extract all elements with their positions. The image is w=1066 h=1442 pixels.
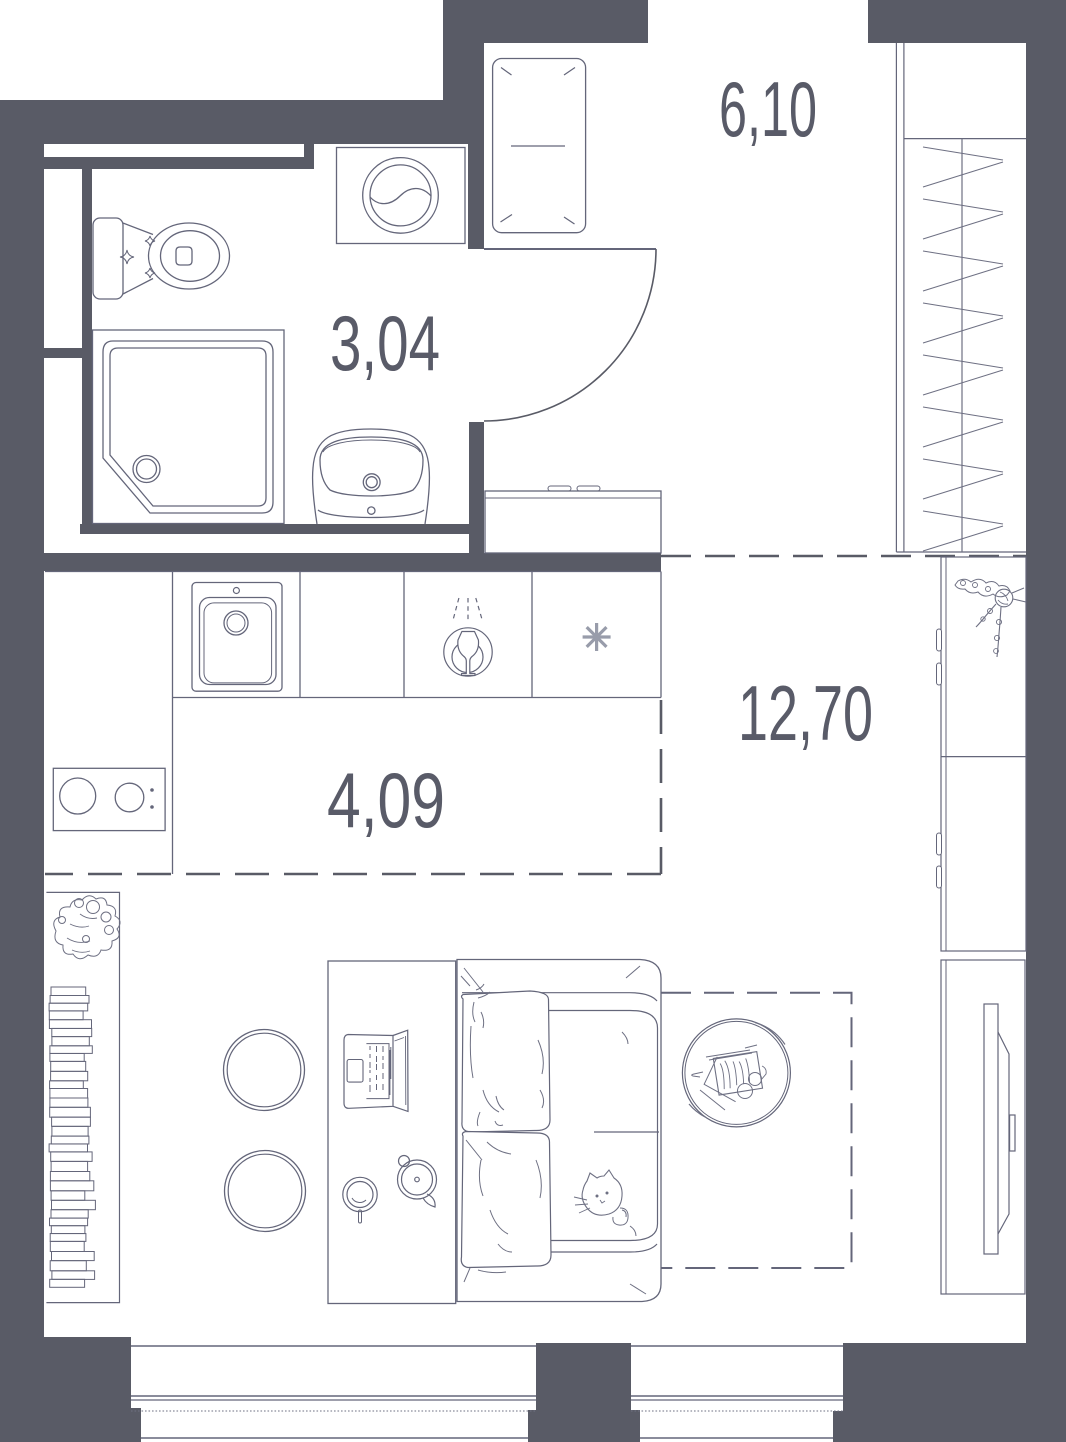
svg-text:4,09: 4,09 bbox=[327, 756, 445, 844]
svg-text:12,70: 12,70 bbox=[738, 669, 873, 757]
svg-text:3,04: 3,04 bbox=[330, 299, 440, 387]
svg-text:6,10: 6,10 bbox=[719, 65, 817, 153]
